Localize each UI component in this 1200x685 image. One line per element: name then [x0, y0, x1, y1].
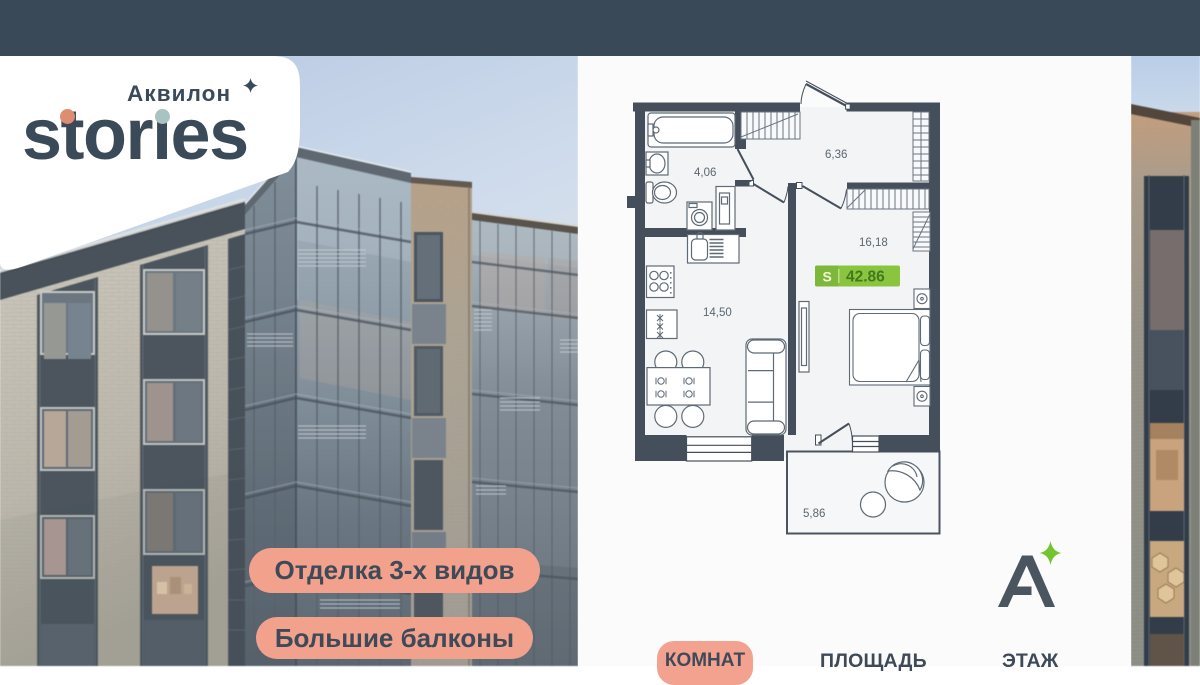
svg-text:S: S [823, 269, 832, 285]
svg-text:5,86: 5,86 [803, 508, 825, 520]
svg-text:42.86: 42.86 [846, 269, 885, 286]
svg-text:16,18: 16,18 [859, 237, 888, 249]
svg-text:6,36: 6,36 [825, 149, 847, 161]
svg-text:4,06: 4,06 [694, 167, 716, 179]
svg-text:14,50: 14,50 [703, 307, 732, 319]
